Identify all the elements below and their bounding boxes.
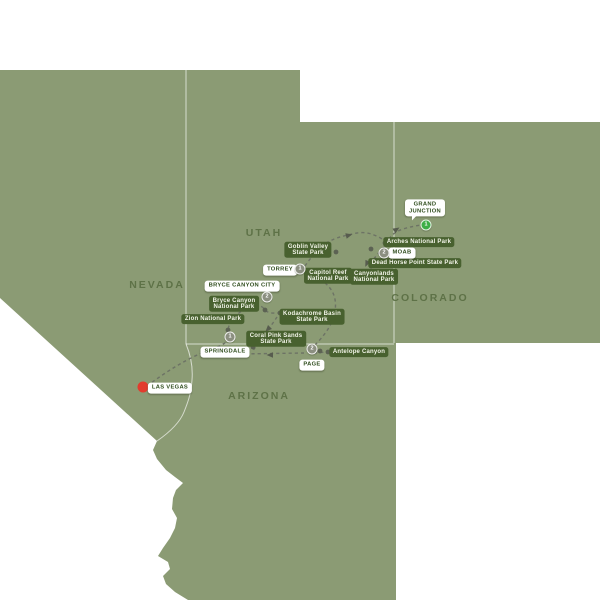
park-label-goblin-valley: Goblin Valley State Park — [284, 242, 331, 258]
start-city-marker — [138, 382, 149, 393]
city-label-torrey: TORREY — [263, 265, 297, 276]
park-label-kodachrome-basin: Kodachrome Basin State Park — [280, 309, 345, 325]
city-label-moab: MOAB — [389, 248, 416, 259]
state-label-utah: UTAH — [244, 227, 282, 239]
park-label-coral-pink-sands: Coral Pink Sands State Park — [246, 331, 306, 347]
night-badge-page-nights: 2 — [307, 344, 318, 355]
map-labels-layer: NEVADAUTAHCOLORADOARIZONAGoblin Valley S… — [0, 0, 600, 600]
park-label-capitol-reef: Capitol Reef National Park — [304, 268, 352, 284]
park-label-antelope-canyon: Antelope Canyon — [329, 347, 388, 357]
park-label-dead-horse-point: Dead Horse Point State Park — [368, 258, 461, 268]
state-label-colorado: COLORADO — [389, 292, 468, 304]
night-badge-bryce-canyon-city-nights: 2 — [262, 292, 273, 303]
city-label-grand-junction: GRAND JUNCTION — [405, 199, 445, 216]
night-badge-torrey-nights: 1 — [295, 264, 306, 275]
night-badge-springdale-nights: 1 — [225, 332, 236, 343]
night-badge-grand-junction-nights: 1 — [421, 220, 432, 231]
state-label-arizona: ARIZONA — [226, 390, 290, 402]
city-label-bryce-canyon-city: BRYCE CANYON CITY — [205, 281, 280, 292]
city-label-las-vegas: LAS VEGAS — [148, 383, 192, 394]
night-badge-moab-nights: 2 — [379, 248, 390, 259]
tour-itinerary-map: NEVADAUTAHCOLORADOARIZONAGoblin Valley S… — [0, 0, 600, 600]
city-label-page: PAGE — [299, 360, 324, 371]
city-label-springdale: SPRINGDALE — [200, 347, 249, 358]
park-label-canyonlands: Canyonlands National Park — [350, 269, 398, 285]
state-label-nevada: NEVADA — [127, 279, 185, 291]
park-label-bryce-canyon-np: Bryce Canyon National Park — [209, 296, 259, 312]
park-label-zion: Zion National Park — [181, 314, 244, 324]
park-label-arches: Arches National Park — [383, 237, 454, 247]
